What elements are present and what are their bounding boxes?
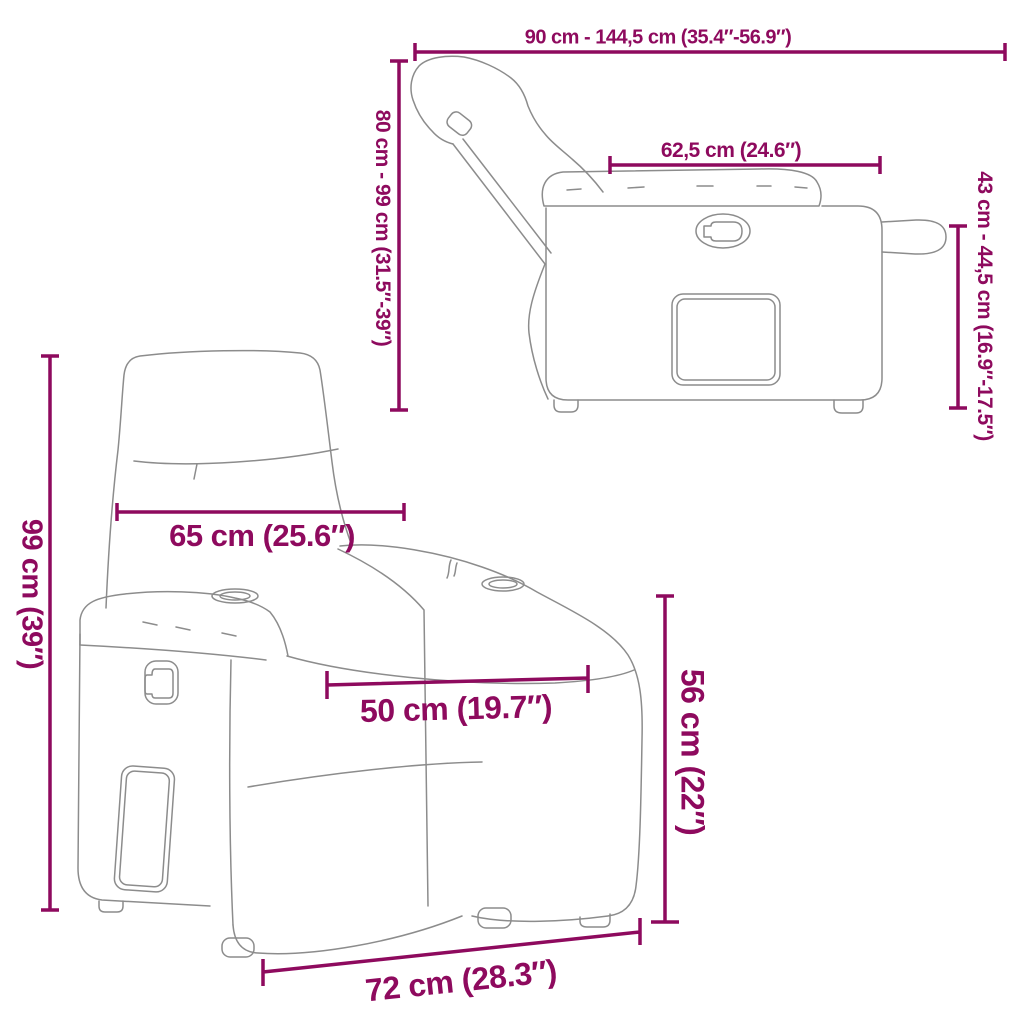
- label-seat-width: 50 cm (19.7″): [360, 688, 553, 730]
- front-right-armrest-creases: [447, 560, 457, 578]
- side-backrest-seam: [463, 139, 551, 253]
- dimension-lines: [41, 43, 1005, 986]
- front-foot-left-front: [222, 938, 254, 957]
- front-backrest-seam: [134, 449, 338, 464]
- front-pocket-inner: [119, 771, 170, 888]
- front-center-panel-bottom: [233, 916, 462, 954]
- front-left-cupholder-outer: [212, 589, 258, 603]
- label-armrest-depth: 62,5 cm (24.6″): [661, 139, 801, 163]
- label-footrest-height: 43 cm - 44,5 cm (16.9″-17.5″): [972, 171, 996, 440]
- side-body: [546, 206, 882, 400]
- label-seat-height: 56 cm (22″): [674, 669, 711, 835]
- label-back-width: 65 cm (25.6″): [169, 518, 355, 554]
- front-left-armrest-near-edge: [80, 645, 266, 660]
- label-total-depth: 90 cm - 144,5 cm (35.4″-56.9″): [525, 27, 792, 50]
- product-dimension-diagram: 90 cm - 144,5 cm (35.4″-56.9″) 80 cm - 9…: [0, 0, 1024, 1024]
- front-right-cupholder-inner: [489, 580, 517, 588]
- side-backrest-underside: [453, 144, 548, 399]
- front-side-pocket: [114, 765, 176, 892]
- side-headrest-tab: [445, 110, 474, 138]
- label-back-height: 80 cm - 99 cm (31.5″-39″): [370, 110, 394, 346]
- front-release-handle-pull: [145, 669, 173, 698]
- diagram-canvas: [0, 0, 1024, 1024]
- side-pocket-outer: [672, 294, 780, 385]
- front-seat-seam: [248, 762, 482, 787]
- dim-line-footrest-height: [949, 226, 967, 408]
- side-armrest-cushion: [542, 169, 821, 206]
- side-foot-right: [834, 400, 863, 413]
- front-right-armrest-outline: [340, 545, 642, 921]
- front-left-armrest-outer-edge: [78, 634, 210, 906]
- front-armrest-stitch-dashes: [143, 622, 236, 636]
- front-center-panel-left-edge: [230, 660, 233, 925]
- side-release-handle-pull: [704, 222, 742, 241]
- side-foot-left: [554, 400, 578, 412]
- side-footrest: [882, 220, 946, 254]
- label-total-height: 99 cm (39″): [15, 519, 48, 669]
- chair-front-view-drawing: [78, 351, 642, 957]
- chair-side-view-drawing: [411, 56, 946, 413]
- side-cushion-stitch-dashes: [567, 186, 807, 190]
- front-foot-left-rear: [99, 901, 123, 912]
- side-pocket-inner: [677, 299, 775, 380]
- front-backrest-outline: [106, 351, 352, 608]
- front-backrest-seam-tick: [194, 464, 197, 479]
